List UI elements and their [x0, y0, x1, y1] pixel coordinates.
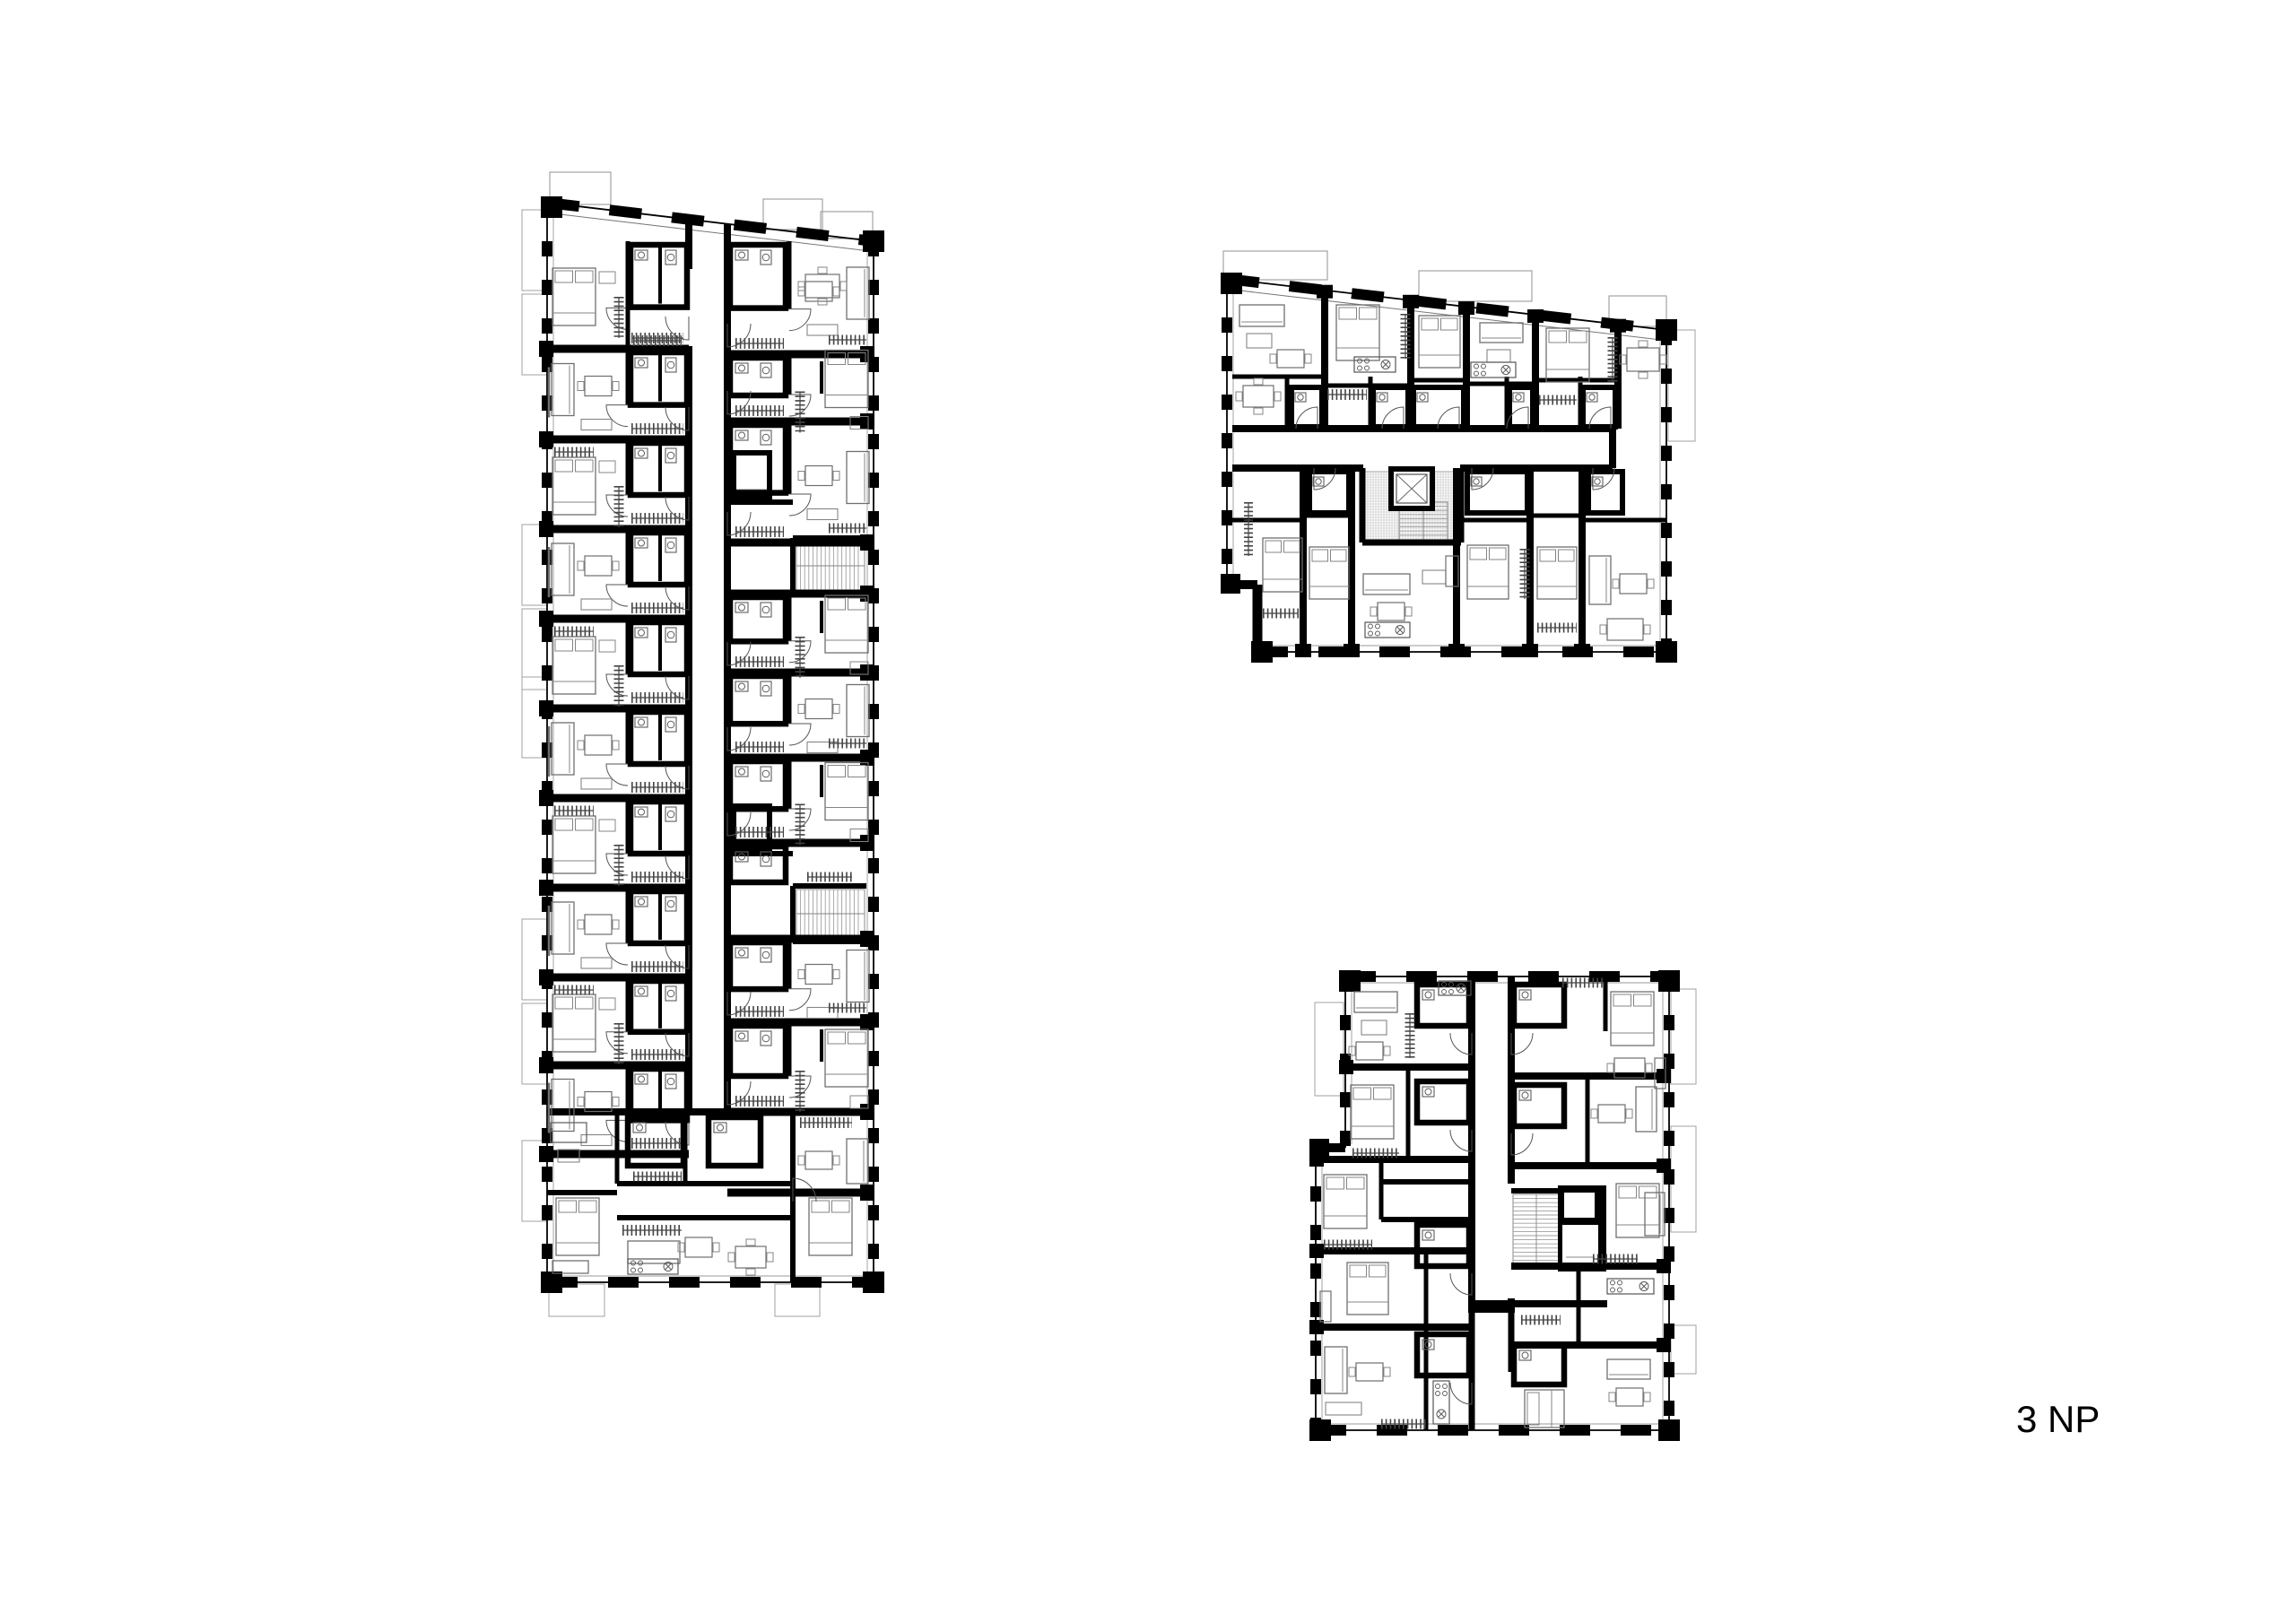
svg-text:3 NP: 3 NP	[2016, 1398, 2100, 1440]
